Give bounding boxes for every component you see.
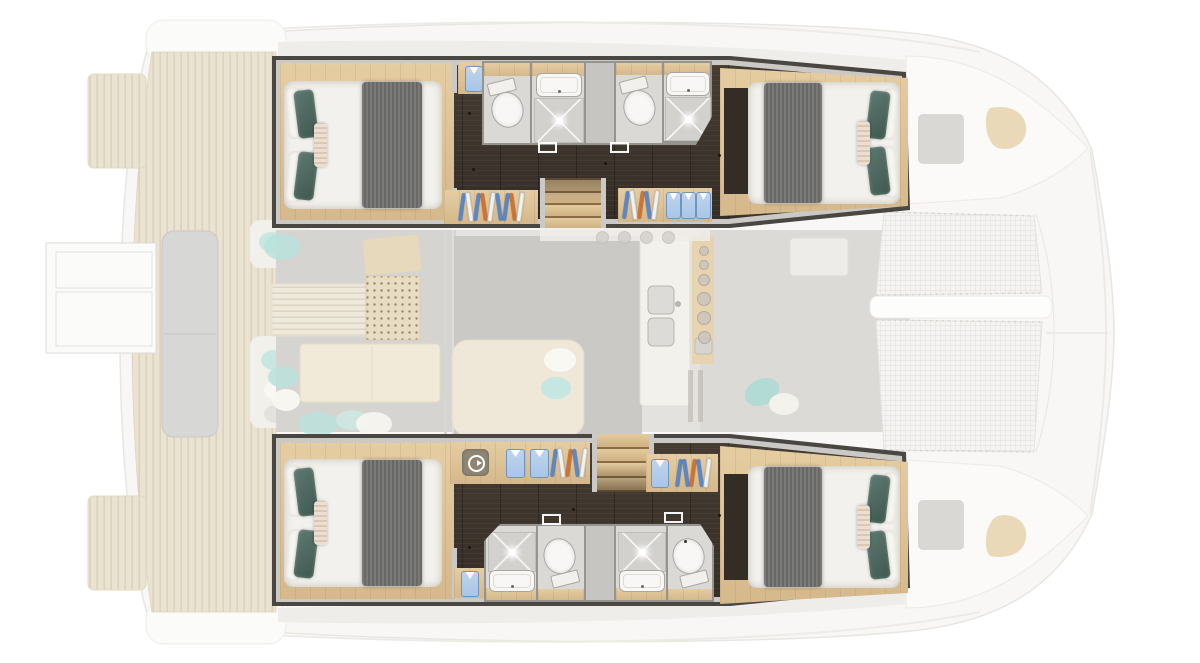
- cabin-top-left: [280, 63, 454, 220]
- swim-ladder: [46, 243, 156, 353]
- stove-burner-icon: [697, 311, 711, 325]
- chaise-lounge: [452, 340, 584, 436]
- sink-icon: [489, 570, 535, 592]
- salon-unit: [790, 238, 848, 276]
- shower-icon: [618, 532, 666, 572]
- stair-tread: [597, 463, 649, 478]
- cabin-bottom-left: [280, 443, 454, 599]
- salon-faded: [264, 228, 910, 436]
- hull-top: [272, 50, 912, 234]
- cabin-top-right: [720, 64, 908, 218]
- bed-top-left: [284, 81, 442, 209]
- salon-window-mullion: [444, 230, 447, 434]
- stair-tread: [597, 434, 649, 449]
- hanger-icon: [495, 193, 503, 221]
- hanger-icon: [502, 193, 510, 221]
- blanket: [362, 460, 422, 586]
- door-swing-mark: [542, 514, 561, 525]
- bathroom-bottom-forward-shower-room: [616, 526, 666, 600]
- bathrooms-bottom: [484, 524, 714, 602]
- stair-tread: [545, 203, 601, 216]
- aft-deck: [46, 20, 310, 644]
- folded-shirt-icon: [666, 192, 681, 219]
- swim-platform-top: [88, 74, 146, 168]
- folded-shirt-icon: [651, 459, 669, 488]
- bathroom-top-forward-shower-room: [664, 63, 710, 141]
- cabin-bottom-right: [720, 442, 908, 608]
- deck-hatch-top: [918, 114, 964, 164]
- cabinet-bottom: [454, 568, 484, 598]
- blanket: [764, 467, 822, 587]
- folded-shirt-icon: [506, 449, 525, 478]
- wardrobe-top-right: [618, 188, 712, 222]
- stove-burner-icon: [699, 260, 709, 270]
- hanger-icon: [480, 193, 488, 221]
- pillows: [853, 86, 897, 200]
- bathroom-top-forward-toilet-room: [616, 63, 662, 143]
- pillow-striped: [857, 505, 870, 549]
- stove-burner-icon: [698, 331, 711, 344]
- sink-icon: [619, 570, 665, 592]
- hanger-icon: [473, 193, 481, 221]
- hanger-icon: [702, 458, 711, 488]
- bathroom-bottom-aft-toilet-room: [538, 526, 584, 600]
- deck-hatch-bottom: [918, 500, 964, 550]
- stair-tread: [597, 449, 649, 464]
- bathroom-top-aft-toilet-room: [484, 63, 530, 143]
- hanger-icons: [550, 445, 588, 481]
- bathroom-partition: [586, 526, 614, 600]
- toilet-icon: [616, 75, 661, 130]
- stove-burners: [692, 240, 714, 364]
- hanger-icon: [486, 192, 495, 222]
- pillows: [853, 470, 897, 584]
- cabin-entry-floor: [724, 88, 748, 194]
- hanger-icons: [620, 190, 662, 220]
- cabin-entry-floor: [724, 474, 748, 580]
- blanket: [764, 83, 822, 203]
- hanger-icon: [651, 190, 660, 220]
- shower-icon: [488, 532, 536, 572]
- pillow-striped: [857, 121, 870, 165]
- bathroom-bottom-aft-shower-room: [486, 526, 536, 600]
- bathroom-bottom-forward-toilet-room: [668, 526, 712, 600]
- hanger-icon: [579, 448, 588, 478]
- shower-icon: [534, 98, 584, 143]
- hanger-icon: [464, 192, 473, 222]
- swim-platform-bottom: [88, 496, 146, 590]
- hanger-icon: [689, 459, 697, 487]
- hanger-icon: [675, 459, 683, 487]
- hanger-icons: [446, 192, 536, 222]
- stair-tread: [545, 191, 601, 204]
- pillow-striped: [314, 123, 327, 167]
- pillow-striped: [314, 501, 327, 545]
- folded-shirt-icon: [681, 192, 696, 219]
- stove-burner-icon: [697, 292, 711, 306]
- wardrobe-bottom-left: [450, 442, 590, 484]
- dinette-table: [300, 344, 440, 402]
- stair-tread: [545, 216, 601, 229]
- folded-shirt-icon: [530, 449, 549, 478]
- washing-machine-icon: [462, 449, 489, 476]
- pillows: [287, 463, 331, 583]
- catamaran-floorplan: [0, 0, 1200, 663]
- hanger-icon: [458, 193, 466, 221]
- door-swing-mark: [610, 142, 629, 153]
- stove-burner-icon: [698, 274, 710, 286]
- bathrooms-top: [482, 61, 712, 145]
- galley-sink-icon: [648, 286, 674, 314]
- door-swing-mark: [538, 142, 557, 153]
- pillows: [287, 85, 331, 205]
- folded-shirt-icon: [465, 66, 483, 92]
- toilet-icon: [668, 535, 713, 590]
- toilet-icon: [539, 535, 584, 590]
- stove-burner-icon: [699, 246, 709, 256]
- foredeck-beam: [870, 296, 1052, 318]
- bed-bottom-right: [748, 466, 900, 588]
- sink-icon: [536, 73, 582, 97]
- folded-shirt-icon: [696, 192, 711, 219]
- salon-cabinet: [366, 276, 420, 340]
- sink-icon: [666, 72, 710, 96]
- stairs-bottom: [592, 434, 654, 492]
- hanger-icon: [682, 459, 690, 487]
- bed-bottom-left: [284, 459, 442, 587]
- blanket: [362, 82, 422, 208]
- wardrobe-bottom-right: [646, 454, 718, 492]
- chart-table: [363, 235, 422, 276]
- door-swing-mark: [664, 512, 683, 523]
- bathroom-partition: [586, 63, 614, 143]
- stair-tread: [597, 478, 649, 493]
- galley-sink-icon: [648, 318, 674, 346]
- wardrobe-top-left: [444, 190, 538, 224]
- hanger-icon: [509, 193, 517, 221]
- wall-stub: [452, 63, 457, 93]
- hanger-icon: [515, 192, 524, 222]
- bathroom-top-aft-shower-room: [532, 63, 584, 143]
- toilet-icon: [484, 77, 529, 132]
- stairs-top: [540, 178, 606, 228]
- folded-shirt-icon: [461, 571, 479, 597]
- bed-top-right: [748, 82, 900, 204]
- hanger-icon: [696, 459, 704, 487]
- hanger-icons: [671, 456, 715, 490]
- salon-slatted-bench: [272, 284, 366, 336]
- hull-bottom: [272, 428, 912, 612]
- stair-tread: [545, 178, 601, 191]
